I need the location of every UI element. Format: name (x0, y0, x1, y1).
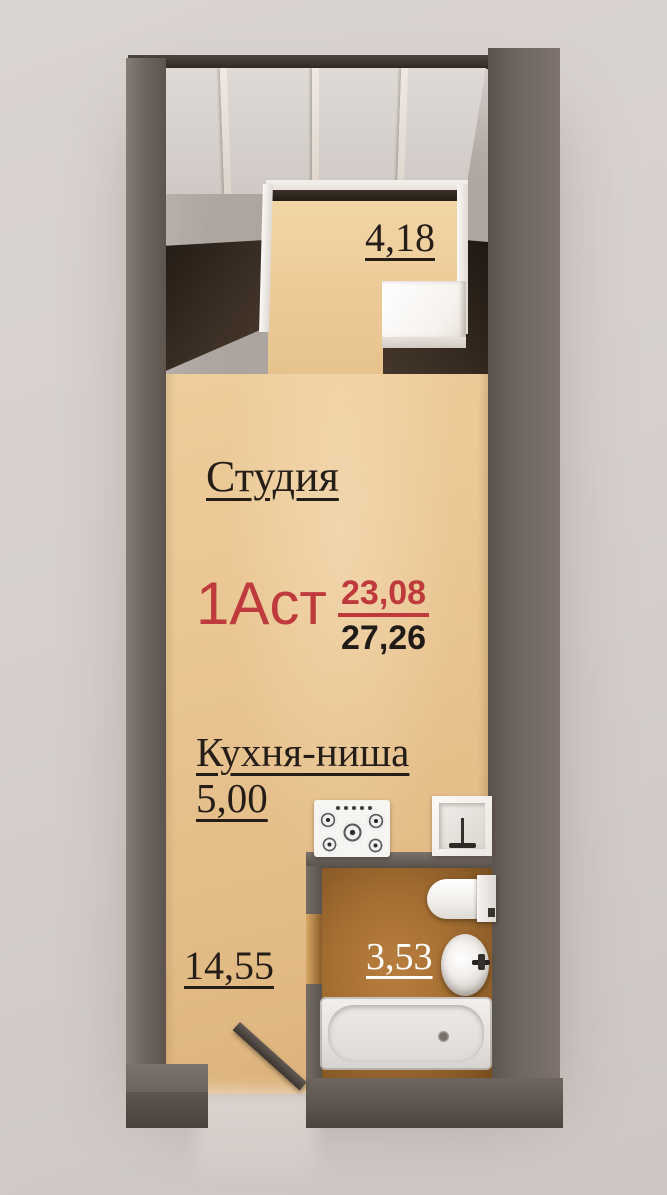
balcony-lintel (266, 190, 468, 201)
left-wall-foot (126, 1064, 208, 1094)
stove-burner (366, 836, 385, 855)
left-wall-foot-front (126, 1092, 208, 1128)
right-wall (488, 48, 560, 1090)
bathtub-icon (320, 997, 492, 1070)
stove-icon (314, 800, 390, 857)
room-name-label: Студия (206, 455, 339, 499)
glazing-mullion (397, 68, 408, 194)
balcony-cabinet-front (382, 337, 466, 348)
bathroom-door-opening (306, 914, 322, 984)
bathroom-area-label: 3,53 (366, 938, 433, 976)
stove-burner (366, 811, 386, 831)
balcony-area-label: 4,18 (365, 218, 435, 258)
bathtub-drain (438, 1031, 449, 1042)
stove-knob (336, 806, 340, 810)
kitchen-area-label: 5,00 (196, 778, 268, 819)
bathtub-inner (328, 1005, 484, 1062)
kitchen-sink-icon (432, 796, 492, 856)
doorway-light (196, 1090, 316, 1190)
kitchen-sink-faucet (461, 818, 464, 844)
stove-burner (320, 835, 339, 854)
kitchen-name-label: Кухня-ниша (196, 732, 409, 773)
balcony-glazing-frame (128, 55, 492, 69)
stove-knob (344, 806, 348, 810)
left-wall (126, 58, 166, 1092)
stove-knob (368, 806, 372, 810)
toilet-icon (427, 879, 481, 919)
stove-knob (360, 806, 364, 810)
floorplan-canvas: 4,18 Студия 1Аст 23,08 27,26 Кухня-ниша … (0, 0, 667, 1195)
balcony-cabinet (382, 281, 466, 339)
studio-area-label: 14,55 (184, 946, 274, 986)
stove-knob (352, 806, 356, 810)
toilet-flush-button (488, 908, 495, 917)
kitchen-sink-faucet-handle (449, 843, 476, 848)
washbasin-faucet-handle (478, 954, 485, 970)
glazing-mullion (219, 68, 230, 194)
bathroom-left-wall-upper (306, 866, 322, 914)
unit-areas: 23,08 27,26 (338, 576, 429, 655)
stove-burner (340, 820, 365, 845)
unit-code-label: 1Аст (196, 574, 327, 634)
balcony-glazing-icon (138, 68, 486, 194)
bottom-wall (306, 1078, 563, 1128)
stove-burner (318, 810, 338, 830)
glazing-mullion (312, 68, 319, 194)
living-area-label: 23,08 (338, 576, 429, 617)
total-area-label: 27,26 (338, 621, 429, 655)
